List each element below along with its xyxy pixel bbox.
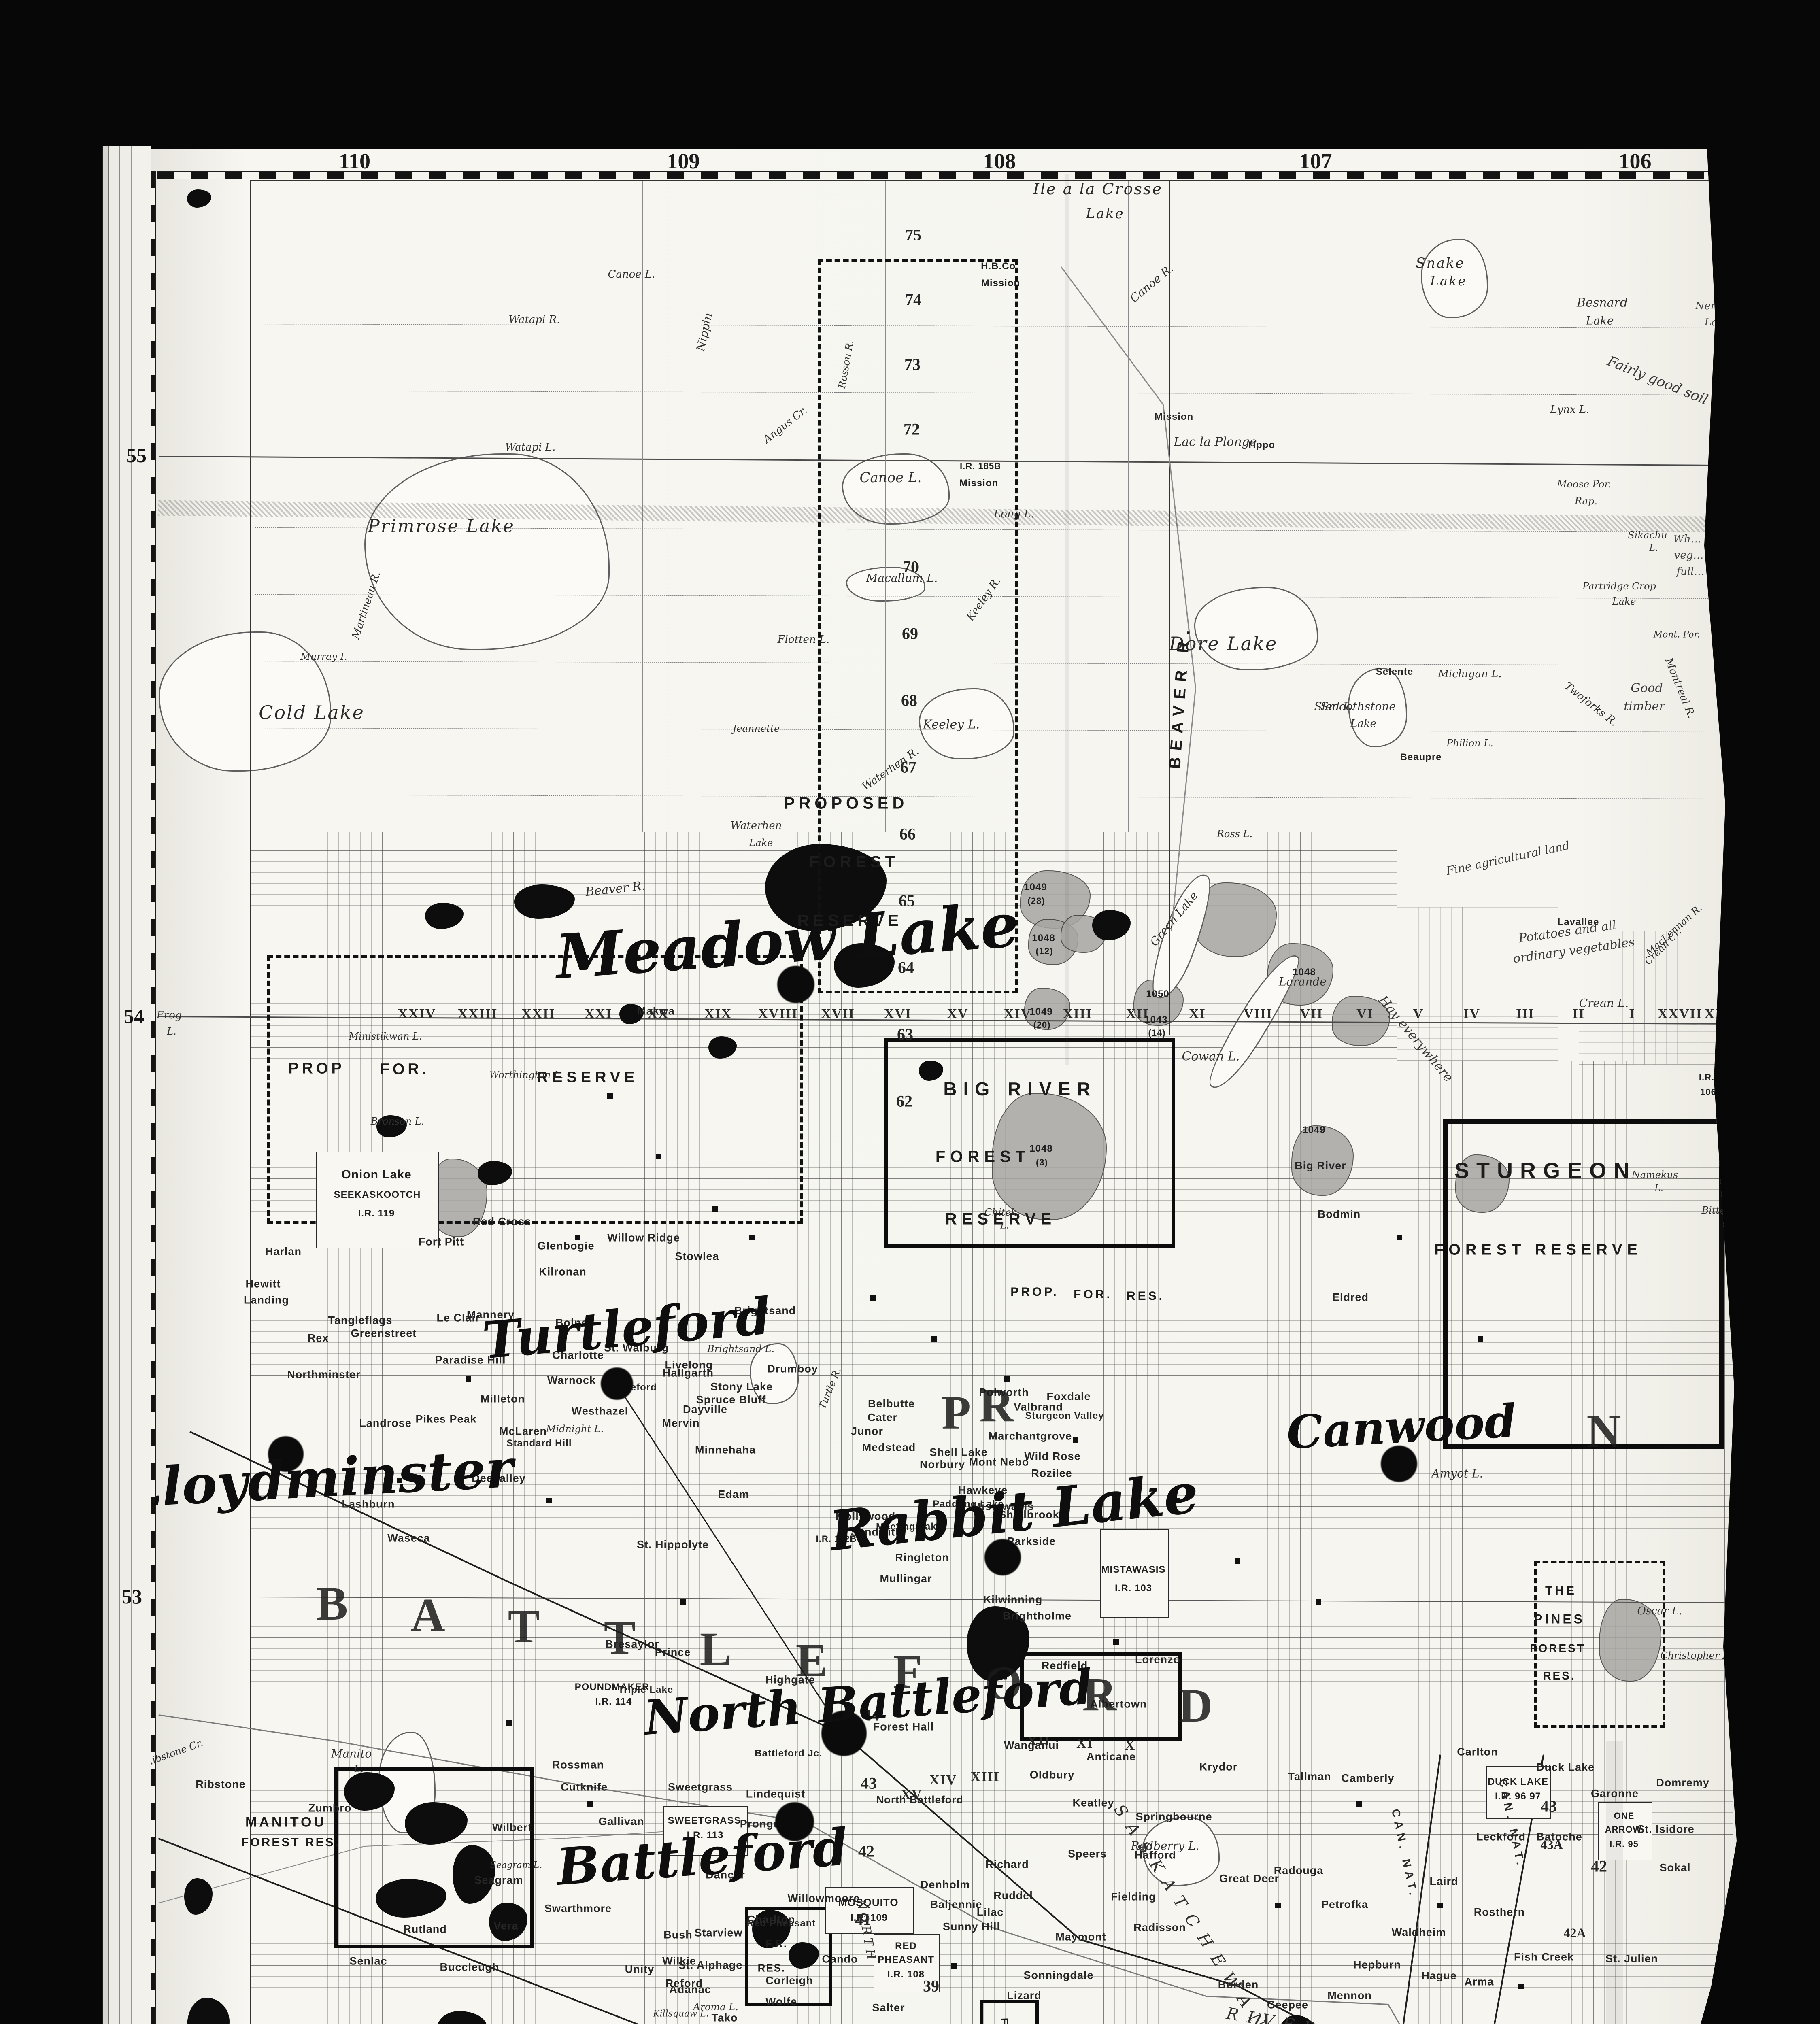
label-water: Lake xyxy=(1586,314,1614,327)
label-rom: VIII xyxy=(1244,1006,1273,1022)
label-town: Tako xyxy=(711,2012,738,2024)
map-sq xyxy=(951,1963,957,1969)
label-town: Wolfe xyxy=(765,1996,797,2008)
label-num: 42A xyxy=(1563,1926,1586,1941)
map-sq xyxy=(466,1376,471,1382)
map-vband xyxy=(1065,174,1069,1065)
label-town: Eldred xyxy=(1332,1291,1369,1304)
label-num: 43 xyxy=(861,1774,877,1793)
label-town: Ceepee xyxy=(1267,1999,1308,2011)
label-rom: XVII xyxy=(821,1006,855,1022)
label-res: RES. xyxy=(758,1962,786,1975)
map-sq xyxy=(1518,1984,1524,1989)
label-num: 62 xyxy=(896,1092,912,1111)
label-bw: Primrose Lake xyxy=(368,516,515,537)
map-line xyxy=(1169,181,1170,1035)
label-town: Selente xyxy=(1376,666,1413,678)
label-bw: Ile a la Crosse xyxy=(1033,180,1163,198)
label-town: Red Pheasant xyxy=(747,1918,816,1929)
label-bw: Lake xyxy=(1086,206,1125,222)
label-rom: XIII xyxy=(1063,1006,1092,1022)
label-lon: 107 xyxy=(1299,149,1332,174)
label-rom: XXVI xyxy=(1705,1006,1737,1022)
label-water: Killsquaw L. xyxy=(653,2009,709,2019)
label-rom: IV xyxy=(1463,1006,1480,1022)
label-water: Sled L. xyxy=(1314,700,1354,713)
label-town: Stony Lake xyxy=(710,1381,773,1393)
label-town: Willow Ridge xyxy=(607,1232,680,1244)
label-rom: XI xyxy=(1189,1006,1206,1022)
label-town: St. Hippolyte xyxy=(637,1539,709,1551)
label-bw: Snake xyxy=(1416,255,1465,271)
label-town: Lavallee xyxy=(1558,916,1599,928)
label-town: Rossman xyxy=(552,1759,604,1771)
label-town: Anticane xyxy=(1086,1751,1136,1763)
label-res: RES. xyxy=(1127,1289,1165,1303)
label-town: Great Deer xyxy=(1219,1873,1279,1885)
label-water: Amyot L. xyxy=(1431,1467,1483,1480)
label-num: 69 xyxy=(902,624,918,643)
book-page-stack-edge xyxy=(102,146,151,2024)
label-town: St. Isidore xyxy=(1637,1823,1695,1836)
label-water: Waterhen xyxy=(730,820,782,832)
neatline-checkered-top xyxy=(157,171,1718,179)
label-ir: I.R. 103 xyxy=(1115,1583,1152,1594)
label-town: Springbourne xyxy=(1136,1811,1212,1823)
label-town: Le Clair xyxy=(436,1312,480,1325)
label-ir: 1050 xyxy=(1146,989,1169,1000)
map-blob xyxy=(184,1878,213,1915)
label-town: Petrofka xyxy=(1321,1899,1368,1911)
map-line xyxy=(1614,181,1614,931)
label-town: Senlac xyxy=(349,1955,387,1968)
label-res: FOR. xyxy=(1074,1288,1112,1301)
label-water: L. xyxy=(167,1026,176,1037)
label-town: Kilronan xyxy=(539,1266,587,1278)
label-res: THE xyxy=(1545,1584,1577,1598)
label-water: L. xyxy=(1649,543,1658,553)
label-town: Kilwinning xyxy=(983,1594,1042,1606)
label-town: Livelong xyxy=(665,1359,713,1371)
label-frag: full… xyxy=(1677,566,1705,578)
label-ir: I.R. 114 xyxy=(595,1696,632,1707)
label-town: Baljennie xyxy=(930,1899,982,1911)
label-town: Seagram xyxy=(474,1874,523,1887)
label-rom: III xyxy=(1516,1006,1535,1022)
label-town: Mullingar xyxy=(880,1573,932,1585)
map-sq xyxy=(506,1720,512,1726)
label-ir: I.R. 185B xyxy=(960,461,1001,472)
label-ir: (28) xyxy=(1027,896,1045,906)
label-ir: 1049 xyxy=(1024,882,1047,893)
label-town: Dayville xyxy=(683,1403,727,1416)
label-town: Swarthmore xyxy=(544,1903,612,1915)
label-town: Vera xyxy=(493,1920,518,1933)
map-sq xyxy=(1073,1437,1078,1443)
label-lon: 109 xyxy=(667,149,700,174)
label-water: Chitek xyxy=(984,1207,1017,1218)
label-town: Fort Pitt xyxy=(419,1236,464,1248)
label-town: Willowmoore xyxy=(788,1892,860,1905)
latitude-label: 55 xyxy=(126,444,147,467)
label-ir: I.R. 95 xyxy=(1610,1839,1639,1850)
label-town: Sonningdale xyxy=(1024,1969,1094,1982)
label-town: Lizard xyxy=(1007,1990,1042,2002)
label-town: Rex xyxy=(308,1332,329,1345)
map-sq xyxy=(870,1295,876,1301)
label-town: Belbutte xyxy=(868,1398,915,1410)
label-town: Adanac xyxy=(669,1984,711,1996)
label-note: timber xyxy=(1624,699,1665,714)
label-rom: XXIV xyxy=(398,1006,436,1022)
label-town: Warnock xyxy=(547,1374,596,1387)
label-town: Batoche xyxy=(1536,1831,1582,1843)
label-town: Zumbro xyxy=(308,1802,352,1815)
label-rom: VI xyxy=(1356,1006,1374,1022)
label-water: Twoforks R. xyxy=(1562,680,1620,729)
label-lon: 108 xyxy=(983,149,1016,174)
map-sq xyxy=(1316,1599,1321,1605)
label-town: Keatley xyxy=(1072,1797,1114,1809)
label-water: Lake xyxy=(1350,718,1376,730)
label-rom: I xyxy=(1629,1006,1635,1022)
map-blob xyxy=(187,189,211,208)
label-res: FOREST xyxy=(809,853,899,872)
label-water: Jeannette xyxy=(733,723,780,734)
label-ir: Onion Lake xyxy=(341,1168,411,1182)
label-num: 43 xyxy=(1541,1797,1557,1816)
map-sq xyxy=(1235,1558,1240,1564)
label-ir: H.B.Co. xyxy=(981,261,1019,272)
label-water: Manito xyxy=(331,1747,372,1760)
label-num: 42 xyxy=(858,1842,874,1861)
label-town: Laird xyxy=(1429,1875,1458,1888)
label-town: Wilbert xyxy=(492,1822,532,1834)
label-town: Fish Creek xyxy=(1514,1951,1574,1964)
label-town: Sweetgrass xyxy=(668,1781,733,1794)
label-town: St. Julien xyxy=(1605,1953,1658,1965)
label-num: 39 xyxy=(923,1977,939,1996)
label-town: Northminster xyxy=(287,1369,361,1381)
label-bw: Lake xyxy=(1430,273,1467,289)
label-town: Milleton xyxy=(481,1393,525,1405)
label-water: Lynx L. xyxy=(1550,404,1590,416)
label-ir: I.R. xyxy=(1699,1072,1714,1083)
label-water: L. xyxy=(1654,1184,1663,1194)
label-water: Watapi L. xyxy=(505,441,556,453)
label-town: Denholm xyxy=(921,1879,970,1891)
label-rom: XXIII xyxy=(458,1006,498,1022)
scan-scene: 1101091081071067574737270696867666564636… xyxy=(0,0,1820,2024)
label-town: Duck Lake xyxy=(1536,1761,1595,1774)
label-town: Standard Hill xyxy=(506,1438,572,1449)
map-sq xyxy=(749,1235,755,1240)
label-rom: VII xyxy=(1300,1006,1323,1022)
label-water: Ministikwan L. xyxy=(349,1031,422,1042)
map-line xyxy=(1371,181,1371,1061)
district-letter: A xyxy=(410,1588,445,1643)
label-town: Wanganui xyxy=(1004,1739,1059,1752)
map-blob xyxy=(187,1998,230,2024)
label-water: Christopher L. xyxy=(1660,1650,1732,1661)
label-water: Mont. Por. xyxy=(1653,630,1700,640)
scanned-map-page: 1101091081071067574737270696867666564636… xyxy=(151,149,1737,2024)
label-town: McLaren xyxy=(499,1425,547,1438)
label-rom: XIV xyxy=(1004,1006,1031,1022)
label-ir: 1049 xyxy=(1029,1006,1052,1018)
label-water: Frog xyxy=(157,1009,182,1021)
label-ir: 106 xyxy=(1700,1087,1716,1097)
district-letter: P xyxy=(942,1385,971,1440)
label-town: Ruddel xyxy=(993,1890,1033,1902)
label-town: St. Alphage xyxy=(678,1959,743,1972)
label-water: Lac la Plonge xyxy=(1174,435,1257,449)
label-town: Landrose xyxy=(359,1417,412,1430)
latitude-label: 54 xyxy=(124,1004,144,1028)
label-water: L. xyxy=(354,1763,364,1775)
label-town: Foxdale xyxy=(1046,1390,1091,1403)
label-rom: XI xyxy=(1076,1736,1093,1751)
label-water: Macallum L. xyxy=(866,572,938,585)
label-rom: XV xyxy=(947,1006,968,1022)
district-letter: D xyxy=(1178,1678,1212,1733)
label-town: Carlton xyxy=(1457,1746,1498,1758)
label-town: Speers xyxy=(1068,1848,1107,1860)
label-ir: (3) xyxy=(1036,1157,1048,1168)
label-town: Norbury xyxy=(920,1458,965,1471)
map-sq xyxy=(587,1801,593,1807)
label-town: Sunny Hill xyxy=(943,1921,1000,1933)
label-town: Richard xyxy=(985,1858,1029,1871)
label-ir: SEEKASKOOTCH xyxy=(334,1189,421,1201)
label-frag: veg… xyxy=(1674,549,1704,561)
label-water: Angus Cr. xyxy=(761,404,810,446)
label-town: Big River xyxy=(1295,1160,1346,1172)
label-bw: Dore Lake xyxy=(1169,633,1278,655)
label-town: Pikes Peak xyxy=(415,1413,476,1426)
label-ir: (12) xyxy=(1035,946,1053,957)
label-town: Unity xyxy=(625,1963,655,1976)
label-res: PROPOSED xyxy=(784,795,908,813)
label-town: Battleford Jc. xyxy=(755,1748,822,1759)
label-num: 68 xyxy=(901,691,917,710)
label-town: Cater xyxy=(867,1412,897,1424)
label-town: Hague xyxy=(1421,1970,1457,1982)
label-rom: XIV xyxy=(929,1773,957,1788)
label-res: FOREST RESERVE xyxy=(1434,1242,1642,1259)
label-water: Murray I. xyxy=(300,651,347,662)
label-town: Tangleflags xyxy=(328,1314,392,1327)
label-town: Lorenzo xyxy=(1135,1654,1180,1666)
label-town: Hepburn xyxy=(1353,1959,1401,1971)
map-sq xyxy=(1437,1903,1443,1908)
label-rom: XVIII xyxy=(758,1006,798,1022)
label-res: BIG RIVER xyxy=(943,1078,1097,1100)
label-town: Beaupre xyxy=(1400,752,1442,763)
label-ir: (20) xyxy=(1033,1020,1050,1030)
district-letter: R xyxy=(979,1378,1014,1433)
label-town: Waldheim xyxy=(1392,1926,1446,1939)
label-town: Waseca xyxy=(387,1532,430,1545)
label-town: Radouga xyxy=(1274,1865,1324,1877)
district-letter: T xyxy=(508,1599,540,1654)
label-water: Montreal R. xyxy=(1663,656,1698,720)
label-res: STURGEON xyxy=(1454,1158,1637,1183)
map-line xyxy=(1128,181,1129,832)
label-town: Corleigh xyxy=(765,1975,813,1987)
label-water: Philion L. xyxy=(1446,738,1493,749)
label-ir: MISTAWASIS xyxy=(1101,1564,1166,1575)
label-town: Buccleugh xyxy=(440,1961,499,1974)
label-rom: XXVII xyxy=(1658,1006,1702,1022)
label-town: Prince xyxy=(655,1646,691,1659)
label-water: Ross L. xyxy=(1217,828,1252,840)
label-town: Krydor xyxy=(1199,1761,1238,1773)
map-lake xyxy=(1194,587,1318,670)
label-water: Nippin xyxy=(694,311,715,352)
city-dot xyxy=(601,1367,633,1400)
label-town: Mennon xyxy=(1327,1990,1371,2002)
label-res: FOREST RES. xyxy=(241,1836,340,1850)
label-lon: 110 xyxy=(339,149,370,174)
label-ir: Mission xyxy=(981,278,1020,289)
label-ir: 1049 xyxy=(1302,1125,1325,1136)
label-water: Moose Por. xyxy=(1557,478,1611,490)
label-water: Michigan L. xyxy=(1438,668,1501,680)
label-frag: Wh… xyxy=(1673,533,1701,545)
label-water: Martineau R. xyxy=(350,570,383,641)
label-res: F.R. xyxy=(765,1938,787,1950)
label-town: Glenbogie xyxy=(537,1240,594,1252)
label-num: 63 xyxy=(897,1025,913,1044)
label-ir: PHEASANT xyxy=(878,1954,934,1966)
label-num: 42 xyxy=(1591,1857,1607,1876)
label-town: Arma xyxy=(1464,1976,1494,1988)
label-water: Larande xyxy=(1279,975,1327,989)
label-res: FOREST xyxy=(1530,1642,1586,1655)
label-ir: Mission xyxy=(959,478,998,489)
district-letter: T xyxy=(604,1610,636,1665)
label-water: Cowan L. xyxy=(1182,1050,1240,1064)
label-town: Oldbury xyxy=(1030,1769,1075,1782)
label-water: Canoe L. xyxy=(860,470,922,486)
label-town: Wild Rose xyxy=(1024,1450,1080,1463)
district-letter: L xyxy=(700,1622,732,1677)
label-water: Rap. xyxy=(1575,495,1597,507)
map-sq xyxy=(1113,1639,1119,1645)
label-water: Lake xyxy=(749,837,773,848)
label-ir: I.R. 119 xyxy=(358,1208,395,1219)
label-town: Junor xyxy=(851,1425,883,1438)
label-water: Long L. xyxy=(994,508,1034,520)
label-town: Radisson xyxy=(1133,1922,1186,1934)
label-ir: SWEETGRASS xyxy=(668,1815,741,1826)
label-town: Garonne xyxy=(1591,1788,1639,1800)
label-town: Gallivan xyxy=(598,1816,644,1828)
district-letter: N xyxy=(1586,1404,1621,1459)
label-water: Oscar L. xyxy=(1637,1605,1682,1617)
label-water: Besnard xyxy=(1577,296,1628,310)
label-town: Domremy xyxy=(1656,1777,1709,1789)
map-sq xyxy=(931,1336,937,1342)
label-town: Fielding xyxy=(1111,1891,1156,1903)
label-ir: I.R. 108 xyxy=(887,1969,925,1980)
label-res: FOREST xyxy=(936,1148,1030,1166)
label-town: Tallman xyxy=(1288,1771,1331,1783)
label-town: Stowlea xyxy=(675,1250,719,1263)
label-town: Tippo xyxy=(1247,440,1275,451)
label-town: Landing xyxy=(244,1294,289,1307)
label-town: Hewitt xyxy=(246,1278,281,1291)
label-water: Watapi R. xyxy=(509,314,560,326)
label-town: Salter xyxy=(872,2002,905,2014)
label-rom: XVI xyxy=(884,1006,912,1022)
label-town: North Battleford xyxy=(876,1794,963,1806)
label-town: Camberly xyxy=(1341,1772,1394,1785)
label-res: MANITOU xyxy=(245,1815,326,1831)
label-town: Minnehaha xyxy=(695,1444,756,1456)
label-rom: V xyxy=(1413,1006,1424,1022)
label-water: Bittern L. xyxy=(1702,1205,1737,1216)
map-sq xyxy=(1275,1903,1281,1908)
label-ir: 1048 xyxy=(1032,933,1055,944)
label-res: F.R. xyxy=(998,2018,1012,2024)
label-ir: RED xyxy=(895,1941,917,1952)
label-num: 73 xyxy=(904,355,921,374)
label-town: Rutland xyxy=(403,1923,447,1936)
label-lon: 106 xyxy=(1619,149,1652,174)
label-water: Crean L. xyxy=(1579,997,1629,1010)
label-ir: 1043 xyxy=(1144,1014,1167,1026)
label-res: PROP. xyxy=(1010,1285,1059,1299)
label-num: 72 xyxy=(904,420,920,439)
label-water: Keeley L. xyxy=(923,718,980,732)
label-town: Sturgeon Valley xyxy=(1025,1410,1104,1422)
label-town: Drumboy xyxy=(767,1363,818,1376)
label-note: Fairly good soil xyxy=(1605,353,1710,408)
neatline-checkered-left xyxy=(151,171,156,2024)
label-rom: XXII xyxy=(521,1006,555,1022)
label-town: Makwa xyxy=(637,1005,675,1018)
label-note: Fine agricultural land xyxy=(1445,839,1571,878)
label-frag: Nem… xyxy=(1695,300,1731,312)
label-num: 75 xyxy=(905,225,921,244)
map-vband xyxy=(1606,1741,1623,2024)
label-water: Midnight L. xyxy=(546,1423,604,1435)
label-town: Borden xyxy=(1218,1979,1259,1991)
label-num: 66 xyxy=(899,825,916,844)
label-town: Bush xyxy=(663,1929,693,1941)
label-res: PINES xyxy=(1534,1612,1585,1627)
label-water: L. xyxy=(1000,1221,1009,1231)
label-water: Namekus xyxy=(1632,1169,1678,1180)
label-ir: ARROW xyxy=(1605,1824,1642,1835)
latitude-label: 53 xyxy=(122,1585,142,1608)
label-town: Maymont xyxy=(1055,1931,1106,1943)
label-town: Starview xyxy=(694,1927,742,1939)
label-town: Sokal xyxy=(1659,1862,1690,1874)
label-water: Bronson L. xyxy=(371,1116,424,1127)
label-town: Bodmin xyxy=(1318,1208,1361,1221)
map-sq xyxy=(680,1599,686,1605)
label-water: Seagram L. xyxy=(490,1860,542,1871)
label-res: PROP xyxy=(288,1060,345,1078)
label-town: Brightholme xyxy=(1003,1610,1072,1622)
map-sq xyxy=(1397,1235,1402,1240)
label-rom: XXI xyxy=(585,1006,612,1022)
label-water: Worthington L. xyxy=(489,1069,563,1080)
label-ir: (14) xyxy=(1148,1028,1165,1038)
